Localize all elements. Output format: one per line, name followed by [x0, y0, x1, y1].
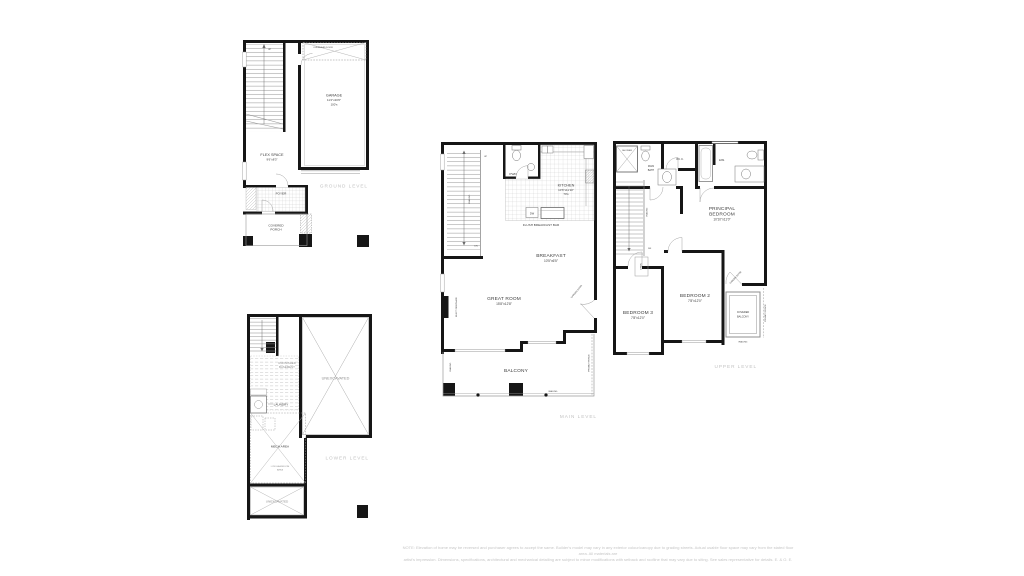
- principal-bedroom-dims: 10'10"x11'0": [713, 217, 730, 221]
- flex-space-label: FLEX SPACE: [260, 153, 284, 157]
- upper-railing-label: RAILING: [646, 207, 649, 216]
- main-stairs: [447, 150, 480, 250]
- upper-thin-lines: [616, 142, 764, 355]
- upper-garden-door-label: GARDEN DOOR: [729, 270, 743, 284]
- main-level-plan: UP DN RAILING PWD KITCHEN 10'6"x11'10" 7…: [435, 138, 605, 425]
- upper-level-title: UPPER LEVEL: [715, 364, 758, 369]
- ground-level-plan: GARAGE 11'2"x20'6" 100's OVERHEAD DOOR F…: [237, 35, 382, 252]
- laundry-tub: [251, 396, 267, 413]
- wic-label: W.I.C.: [676, 157, 684, 161]
- bed2-window: [682, 341, 706, 343]
- low-headroom-label-2: AREA: [277, 469, 283, 472]
- covered-balcony-outline: [726, 292, 760, 337]
- kitchen-note: 70's: [563, 192, 569, 196]
- breakfast-dims: 10'5"x6'5": [544, 259, 558, 263]
- disclaimer-line-1: NOTE: Elevation of home may be reversed …: [398, 545, 798, 557]
- upper-privacy-fence-label: PRIVACY FENCE: [764, 304, 767, 322]
- principal-door-arc: [700, 188, 714, 202]
- ground-up-label: UP: [268, 49, 272, 51]
- mech-area-label: MECH AREA: [271, 445, 290, 449]
- ensuite-label: ENS.: [719, 159, 725, 162]
- garage-door-arc: [301, 54, 313, 66]
- floorplan-sheet: GARAGE 11'2"x20'6" 100's OVERHEAD DOOR F…: [0, 0, 1024, 576]
- upper-railing2-label: RAILING: [739, 341, 748, 344]
- stove: [586, 170, 595, 183]
- mech-equipment: [251, 416, 263, 430]
- kitchen-sink: [542, 146, 548, 153]
- main-dn-label: DN: [474, 246, 478, 248]
- garage-note: 100's: [331, 102, 338, 106]
- breakfast-bar-island: [541, 208, 564, 219]
- disclaimer-line-2: artist's impression. Dimensions, specifi…: [398, 557, 798, 563]
- flex-space-dims: 9'6"x8'3": [266, 158, 277, 162]
- dw-label: DW: [530, 213, 535, 216]
- main-level-title: MAIN LEVEL: [560, 414, 597, 419]
- ground-level-title: GROUND LEVEL: [320, 184, 368, 189]
- bedroom3-dims: 7'8"x12'0": [631, 316, 645, 320]
- bedroom2-dims: 7'8"x12'0": [688, 299, 702, 303]
- pwd-label: PWD: [509, 172, 517, 176]
- porch-steps: [301, 214, 312, 233]
- stairs-railing-label: RAILING: [468, 194, 471, 203]
- fridge: [584, 146, 594, 159]
- great-room-dims: 15'8"x12'8": [496, 302, 512, 306]
- balcony-railing-bottom-label: RAILING: [549, 390, 558, 393]
- balcony-post-dot: [544, 393, 547, 396]
- porch-label-2: PORCH: [270, 228, 281, 232]
- bed3-window: [627, 353, 649, 355]
- privacy-fence-label: PRIVACY FENCE: [588, 354, 591, 372]
- great-room-window: [455, 350, 505, 352]
- ensuite-toilet: [758, 150, 764, 160]
- upper-level-plan: SHOWER MAIN BATH W.I.C. ENS. PRINCIPAL B…: [610, 138, 775, 375]
- lower-level-plan: UNFINISHED BASEMENT LAUNDRY MECH AREA LO…: [240, 308, 380, 530]
- unexcavated-small-label: UNEXCAVATED: [266, 500, 289, 504]
- principal-bedroom-label-1: PRINCIPAL: [709, 206, 736, 212]
- foyer-label: FOYER: [276, 192, 287, 196]
- covered-balcony-label-1: COVERED: [737, 311, 750, 314]
- principal-window: [712, 142, 738, 144]
- low-headroom-label-1: LOW HEADROOM: [271, 465, 290, 468]
- garden-door-arc: [580, 300, 595, 318]
- balcony-post-dot: [476, 393, 479, 396]
- main-bath-label-1: MAIN: [648, 165, 654, 168]
- pwd-sink: [527, 163, 534, 170]
- disclaimer: NOTE: Elevation of home may be reversed …: [398, 545, 798, 563]
- fireplace-label: ELECT FIREPLACE: [455, 297, 458, 317]
- garage-label: GARAGE: [326, 94, 343, 98]
- shower-label: SHOWER: [622, 150, 632, 152]
- pwd-door-arc: [516, 166, 528, 178]
- covered-balcony-label-2: BALCONY: [737, 316, 749, 319]
- lower-level-title: LOWER LEVEL: [325, 456, 369, 461]
- unfinished-basement-label-2: BASEMENT: [279, 365, 295, 369]
- main-up-label: UP: [484, 156, 488, 158]
- main-bath-label-2: BATH: [648, 169, 655, 172]
- upper-stairs: [616, 180, 643, 256]
- ground-thin-lines: [246, 43, 366, 246]
- unexcavated-large-label: UNEXCAVATED: [322, 377, 350, 381]
- pwd-toilet: [512, 146, 521, 151]
- bed2-door-arc: [668, 238, 682, 252]
- upper-dn-label: DN: [648, 248, 652, 250]
- flush-bar-label: FLUSH BREAKFAST BAR: [523, 223, 560, 227]
- laundry-label: LAUNDRY: [274, 403, 289, 407]
- bath-door-arc: [650, 187, 663, 200]
- linen-label: LINEN: [641, 263, 643, 270]
- overhead-door-label: OVERHEAD DOOR: [313, 46, 333, 49]
- balcony-railing-left-label: RAILING: [449, 362, 452, 371]
- balcony-label: BALCONY: [504, 368, 529, 374]
- bath-toilet: [641, 146, 650, 150]
- foyer-closet: [246, 188, 256, 210]
- garden-door-label: GARDEN DOOR: [570, 284, 583, 299]
